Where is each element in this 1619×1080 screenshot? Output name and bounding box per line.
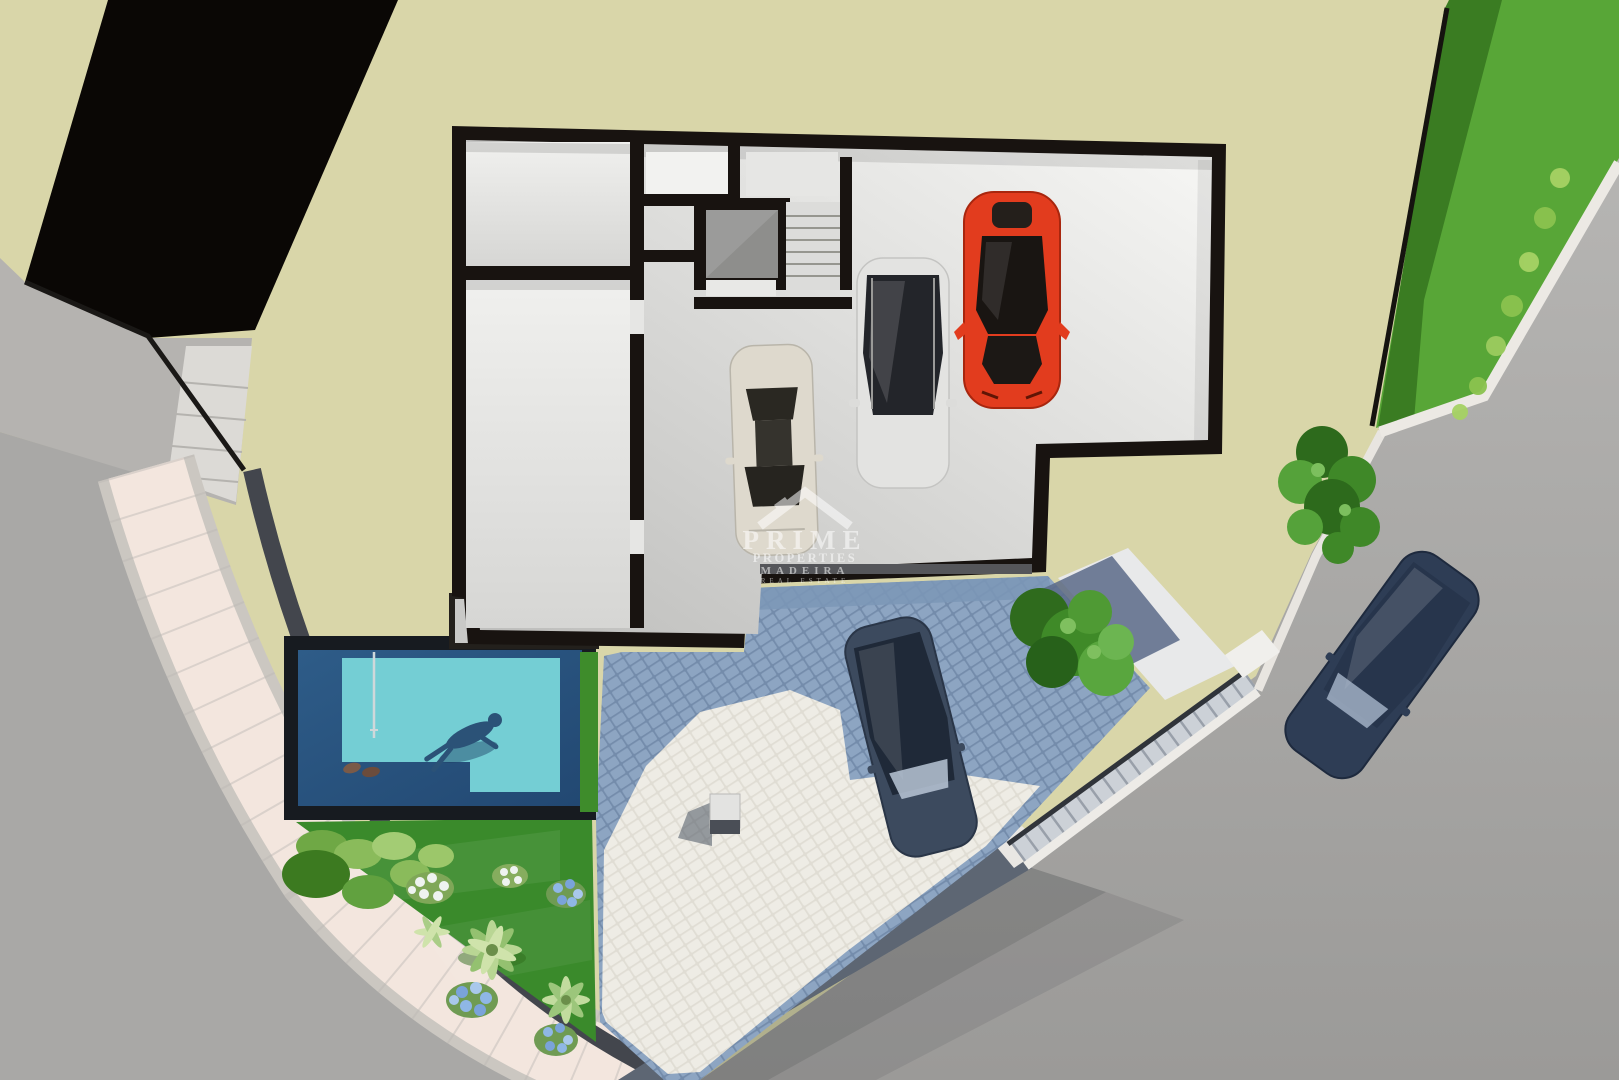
- watermark-line2: PROPERTIES: [753, 551, 857, 565]
- wall-corridor: [630, 250, 704, 262]
- palm-tree-small: [542, 976, 590, 1024]
- storage-room-1: [466, 142, 630, 266]
- wall-stairs-right: [840, 157, 852, 290]
- render-canvas: PRIME PROPERTIES MADEIRA REAL ESTATE: [0, 0, 1619, 1080]
- watermark-line3: MADEIRA: [761, 565, 850, 577]
- garage-car-silver-estate: [849, 258, 957, 488]
- watermark-line4: REAL ESTATE: [761, 577, 849, 585]
- wall-between-rooms: [466, 266, 644, 280]
- storage-room-2: [466, 280, 630, 628]
- garage-car-red-sports: [954, 192, 1070, 408]
- wall-small-room-v: [728, 140, 740, 202]
- small-room-floor: [646, 152, 728, 194]
- wall-vertical-main: [630, 140, 644, 628]
- elevator-shaft: [694, 198, 790, 290]
- wall-stairs-bottom: [694, 297, 852, 309]
- pool-hedge: [580, 652, 598, 812]
- hydrangea-cluster-mid: [446, 982, 498, 1018]
- pool: [284, 636, 596, 820]
